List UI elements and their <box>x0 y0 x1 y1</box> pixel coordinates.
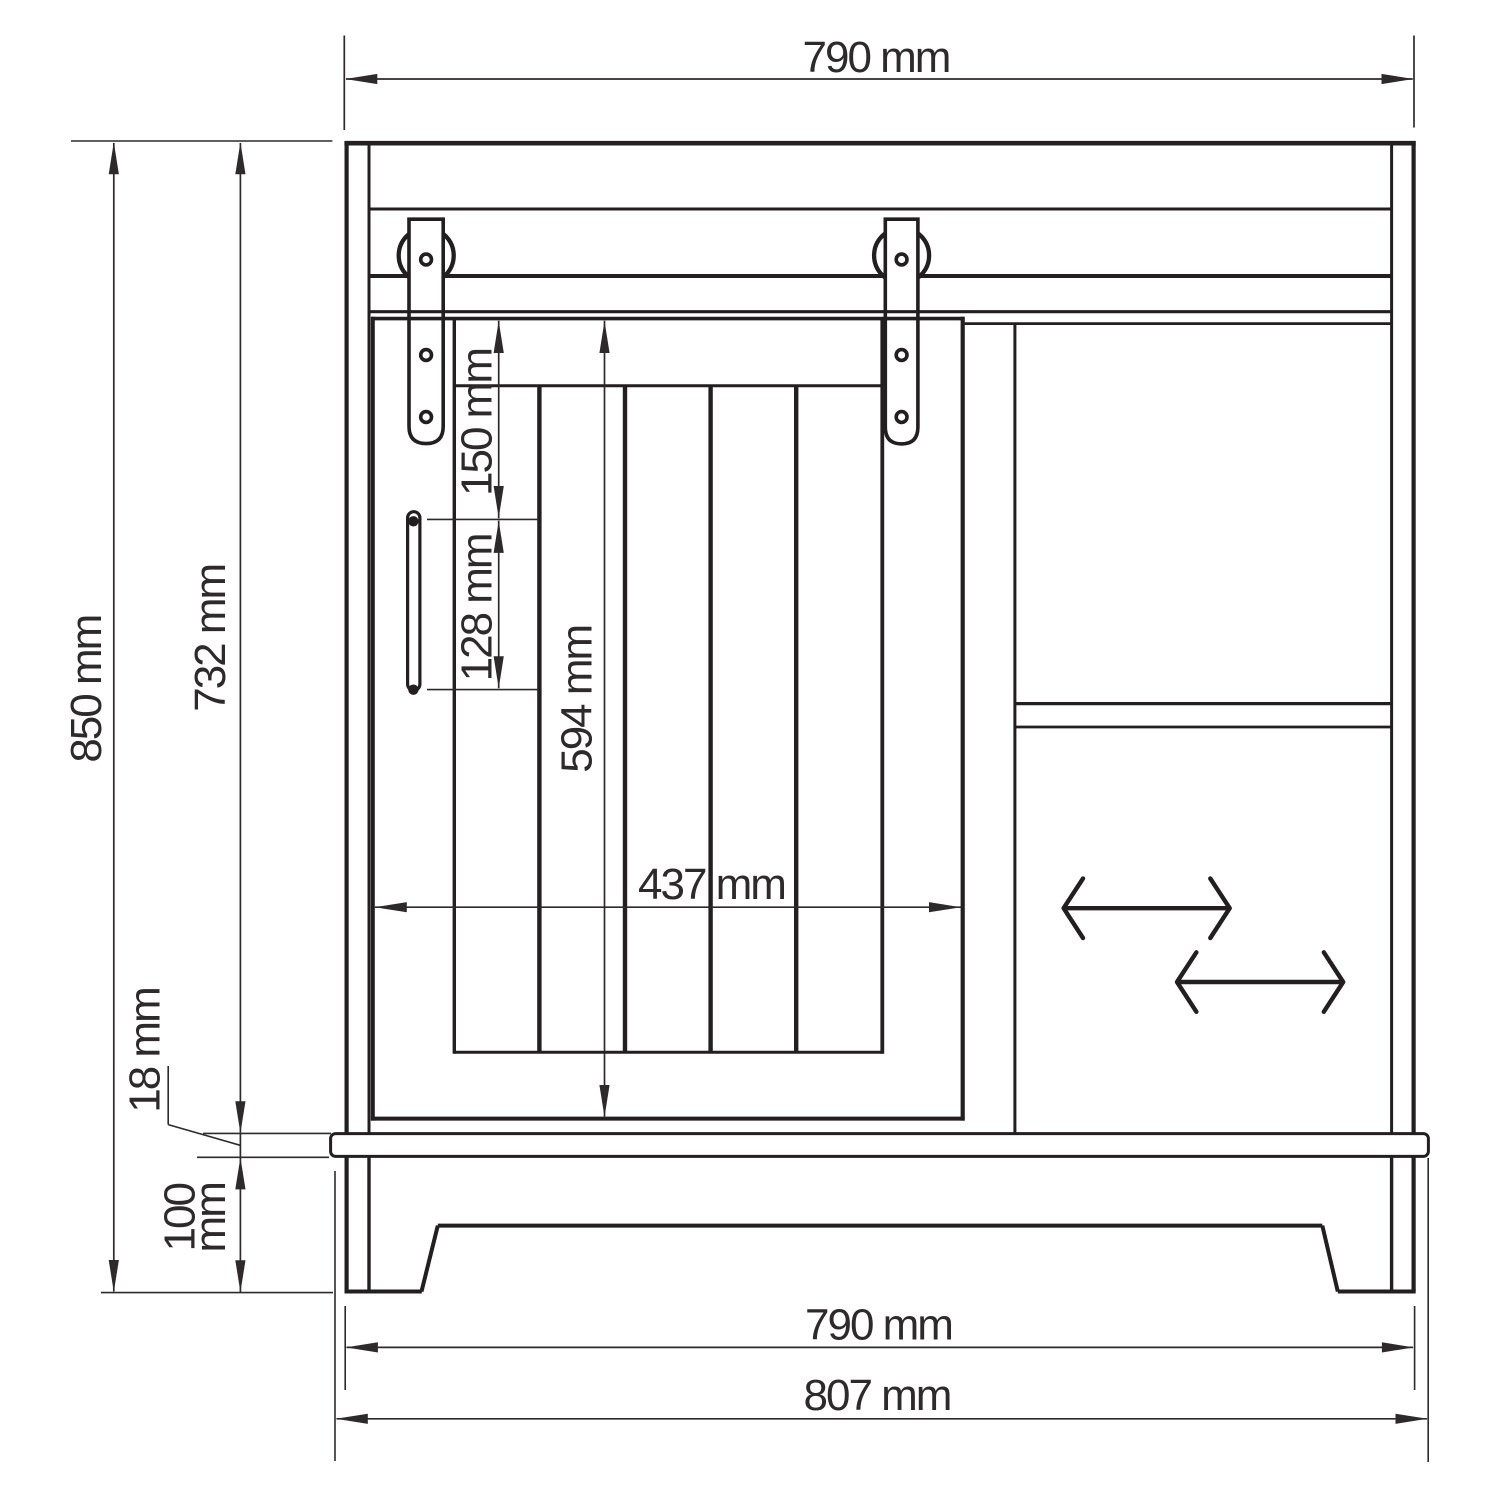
svg-text:mm: mm <box>186 1183 235 1252</box>
svg-text:437 mm: 437 mm <box>638 860 785 909</box>
svg-text:790 mm: 790 mm <box>805 1300 952 1349</box>
svg-text:18 mm: 18 mm <box>121 988 170 1112</box>
svg-text:128 mm: 128 mm <box>453 534 502 681</box>
svg-text:850 mm: 850 mm <box>62 616 111 763</box>
svg-text:807 mm: 807 mm <box>804 1371 951 1420</box>
svg-text:594 mm: 594 mm <box>553 626 602 773</box>
svg-text:150 mm: 150 mm <box>453 349 502 496</box>
svg-text:732 mm: 732 mm <box>186 565 235 712</box>
svg-text:790 mm: 790 mm <box>803 33 950 82</box>
